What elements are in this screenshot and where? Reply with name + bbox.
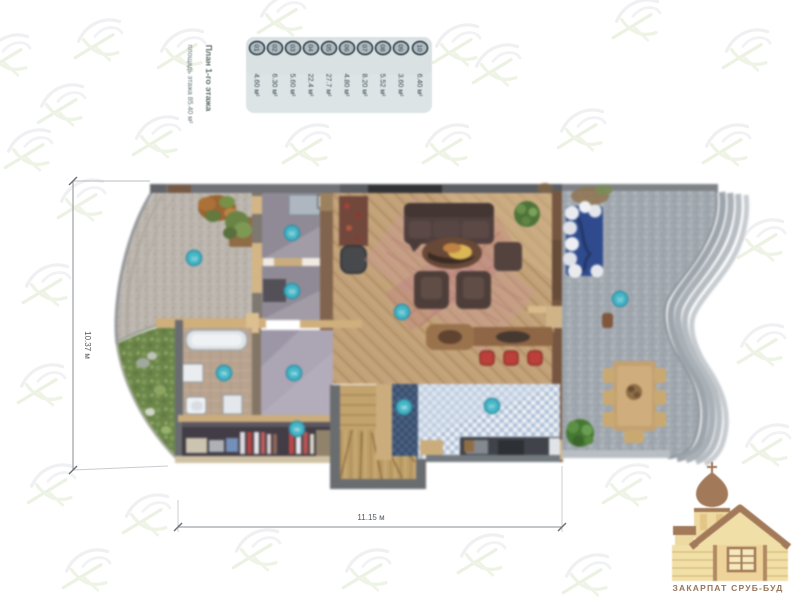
svg-text:ЗАКАРПАТ СРУБ-БУД: ЗАКАРПАТ СРУБ-БУД <box>673 583 784 593</box>
svg-text:площадь этажа 85.40 м²: площадь этажа 85.40 м² <box>186 45 193 124</box>
svg-text:07: 07 <box>361 44 368 52</box>
svg-text:03: 03 <box>289 44 296 52</box>
svg-text:27.7 м²: 27.7 м² <box>325 74 332 97</box>
svg-text:10.37 м: 10.37 м <box>83 331 92 359</box>
svg-text:6.40 м²: 6.40 м² <box>416 74 423 97</box>
svg-text:4.80 м²: 4.80 м² <box>343 74 350 97</box>
svg-text:5.52 м²: 5.52 м² <box>379 74 386 97</box>
svg-text:8.20 м²: 8.20 м² <box>361 74 368 97</box>
svg-text:09: 09 <box>397 44 404 52</box>
svg-text:План 1-го этажа: План 1-го этажа <box>204 45 214 112</box>
svg-text:05: 05 <box>325 44 332 52</box>
svg-text:02: 02 <box>271 44 278 52</box>
svg-text:6.30 м²: 6.30 м² <box>271 74 278 97</box>
svg-text:01: 01 <box>253 44 260 52</box>
svg-text:22.4 м²: 22.4 м² <box>307 74 314 97</box>
svg-text:06: 06 <box>343 44 350 52</box>
svg-text:04: 04 <box>307 44 314 52</box>
svg-text:11.15 м: 11.15 м <box>357 513 384 522</box>
svg-text:4.60 м²: 4.60 м² <box>253 74 260 97</box>
svg-text:08: 08 <box>379 44 386 52</box>
svg-text:10: 10 <box>416 44 423 52</box>
svg-text:3.60 м²: 3.60 м² <box>397 74 404 97</box>
svg-text:5.60 м²: 5.60 м² <box>289 74 296 97</box>
